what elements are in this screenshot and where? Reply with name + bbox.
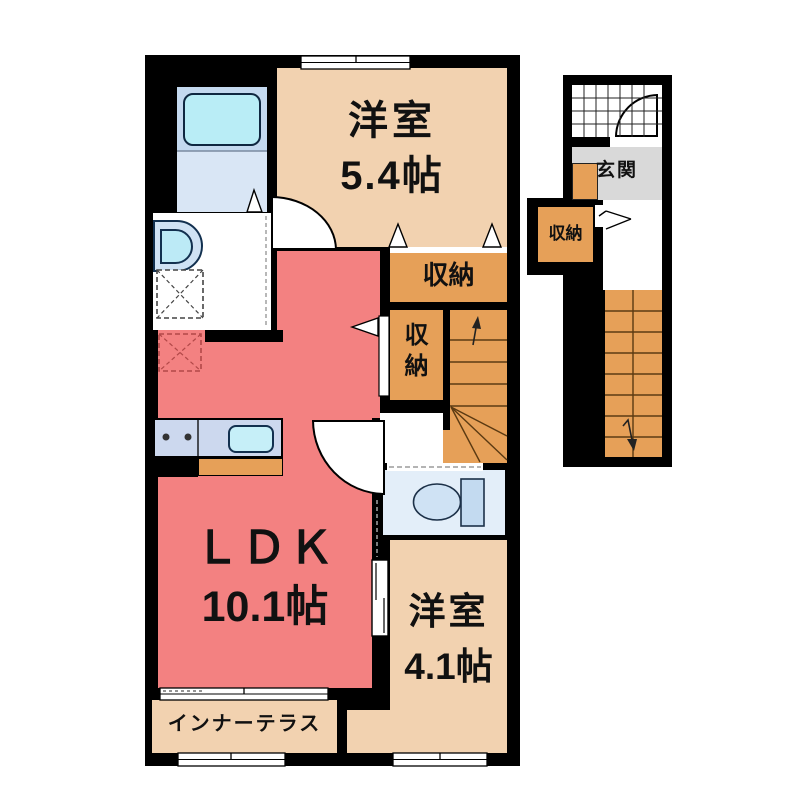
- annex-hallway: [603, 200, 662, 290]
- floor-plan-canvas: 洋室 5.4帖 収納 収納 ＬＤＫ 10.1帖 洋室 4.1帖 インナーテラス …: [0, 0, 800, 800]
- kitchen-wall-notch: [153, 458, 198, 477]
- main-staircase: [450, 310, 507, 463]
- closet-upper-label: 収納: [390, 262, 507, 289]
- kitchen-counter-base: [198, 458, 283, 476]
- room-ldk: [158, 330, 372, 688]
- room-size-western-4-1: 4.1帖: [385, 648, 512, 687]
- entrance-label: 玄関: [572, 161, 662, 181]
- bathtub-icon: [183, 93, 261, 146]
- room-size-ldk: 10.1帖: [150, 585, 380, 630]
- entrance-closet-label: 収納: [538, 225, 593, 243]
- ldk-upper-area: [277, 251, 380, 342]
- room-size-western-5-4: 5.4帖: [277, 155, 507, 197]
- room-label-western-5-4: 洋室: [277, 100, 507, 142]
- main-staircase-winder: [443, 430, 450, 463]
- inner-terrace-label: インナーテラス: [152, 714, 337, 735]
- hallway: [380, 413, 443, 463]
- toilet-door-threshold: [387, 463, 483, 471]
- toilet-room: [383, 470, 505, 535]
- kitchen-sink-icon: [228, 425, 274, 453]
- room-western-4-1-extension: [347, 710, 390, 753]
- closet-side-label: 収納: [403, 320, 430, 382]
- annex-staircase: [605, 290, 662, 457]
- annex-closet-opening: [595, 205, 604, 227]
- room-label-ldk: ＬＤＫ: [158, 524, 372, 571]
- room-label-western-4-1: 洋室: [390, 593, 507, 632]
- washroom-ldk-wall: [205, 330, 283, 342]
- entrance-threshold: [610, 137, 662, 147]
- ldk-side-strip: [372, 251, 380, 418]
